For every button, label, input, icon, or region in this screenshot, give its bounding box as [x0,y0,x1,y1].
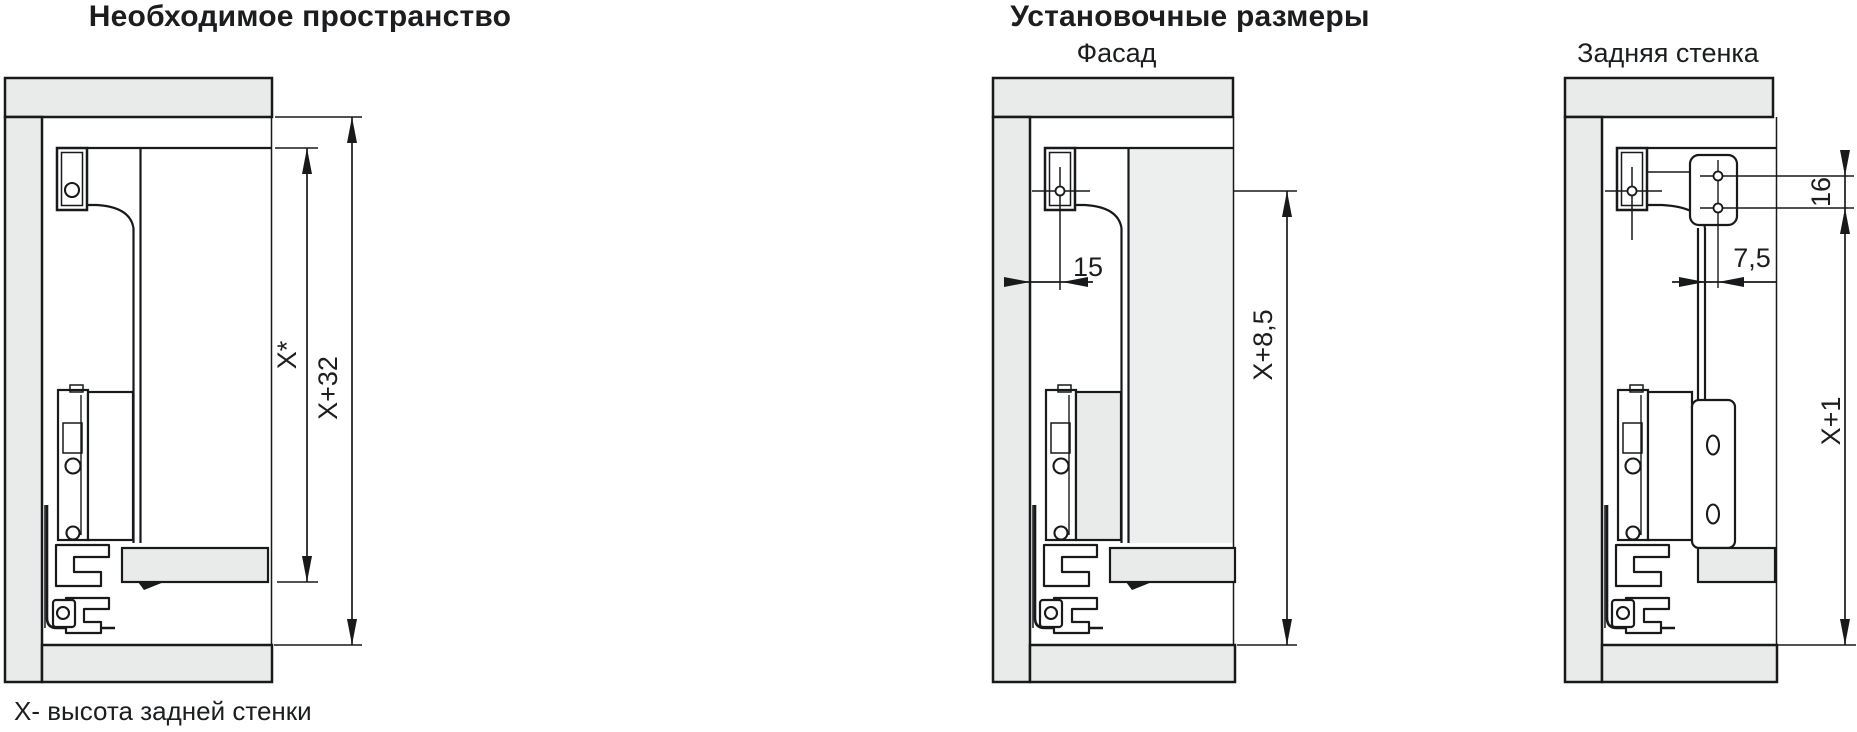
slide-hook-upper [1044,545,1097,586]
back-panel-hole-upper [1707,436,1719,455]
technical-drawing: X* X+32 [0,0,1857,732]
cabinet-bottom-shelf [42,645,272,682]
slide-hook-upper [56,545,109,586]
drawer-side-panel [1648,392,1692,540]
dimension-x-plus-32: X+32 [274,117,362,645]
front-fixing-bracket [57,148,87,210]
rail-hole-lower [1627,527,1640,540]
drawer-side-rail [1618,385,1648,540]
bracket-hole [1628,187,1637,196]
cabinet-front-wall [993,117,1030,682]
cabinet-top-panel [1565,78,1773,117]
slide-hook-upper [1616,545,1669,586]
arrow-up [347,117,357,143]
dimension-label-x-plus-8-5: X+8,5 [1248,309,1278,380]
arrow-down [1282,619,1292,645]
drawer-side-rail [58,385,88,540]
back-wall-elevation [1692,400,1735,548]
rail-hole-upper [1054,459,1069,474]
arrow-down-x1 [1840,619,1850,645]
plate-body [1690,155,1737,225]
arrow-up [302,148,312,174]
cabinet-top-panel [5,78,272,117]
front-fillet [87,205,134,228]
back-wall-bracket-plate [1690,155,1854,288]
drawer-bottom-panel [1110,548,1235,582]
rail-hole-lower [67,527,80,540]
cabinet-bottom-shelf [1030,645,1235,682]
cabinet-front-wall [1565,117,1602,682]
bottom-clip [138,582,164,590]
bottom-clip [1126,582,1152,590]
dimension-label-x-plus-1: X+1 [1816,397,1846,446]
bracket-hole [1056,187,1065,196]
arrow-down-16 [1840,150,1850,176]
arrow-down [347,619,357,645]
diagram-facade: 15 X+8,5 [993,78,1297,682]
dimension-label-15: 15 [1073,252,1103,282]
dimension-label-x-plus-32: X+32 [313,356,343,420]
drawer-bottom-panel [1698,548,1775,582]
drawer-side-rail [1046,385,1076,540]
drawer-bottom-panel [122,548,268,582]
rail-hole-lower [1055,527,1068,540]
cabinet-top-panel [993,78,1233,117]
back-panel-hole-lower [1707,505,1719,524]
arrow-left [1718,277,1744,287]
bracket-hole [65,183,79,197]
drawer-side-panel [1076,392,1121,540]
dimension-label-7-5: 7,5 [1733,243,1771,273]
dimension-label-x-star: X* [272,340,302,369]
latch-hole [1045,607,1057,619]
plate-hole-lower [1714,204,1723,213]
page: Необходимое пространство Установочные ра… [0,0,1857,732]
front-fixing-bracket [1605,148,1662,240]
facade-panel-fill [1129,148,1234,543]
dimension-16-and-x-plus-1: 16 X+1 [1777,150,1856,645]
latch-hole [1617,607,1629,619]
arrow-right [1679,277,1705,287]
dimension-7-5: 7,5 [1672,243,1777,287]
arrow-down [302,556,312,582]
arrow-up [1282,191,1292,217]
front-fillet [1075,205,1122,228]
cabinet-bottom-shelf [1602,645,1777,682]
back-panel [1692,400,1735,548]
latch-hole [57,607,69,619]
drawer-side-panel [88,392,133,540]
dimension-label-16: 16 [1806,177,1836,207]
plate-hole-upper [1714,172,1723,181]
dimension-x-plus-8-5: X+8,5 [1233,191,1297,645]
rail-hole-upper [1626,459,1641,474]
cabinet-front-wall [5,117,42,682]
diagram-required-space: X* X+32 [5,78,362,682]
arrow-up-shared [1840,208,1850,234]
diagram-back-wall: 7,5 16 X+1 [1565,78,1856,682]
dimension-x-star: X* [272,148,318,582]
rail-hole-upper [66,459,81,474]
